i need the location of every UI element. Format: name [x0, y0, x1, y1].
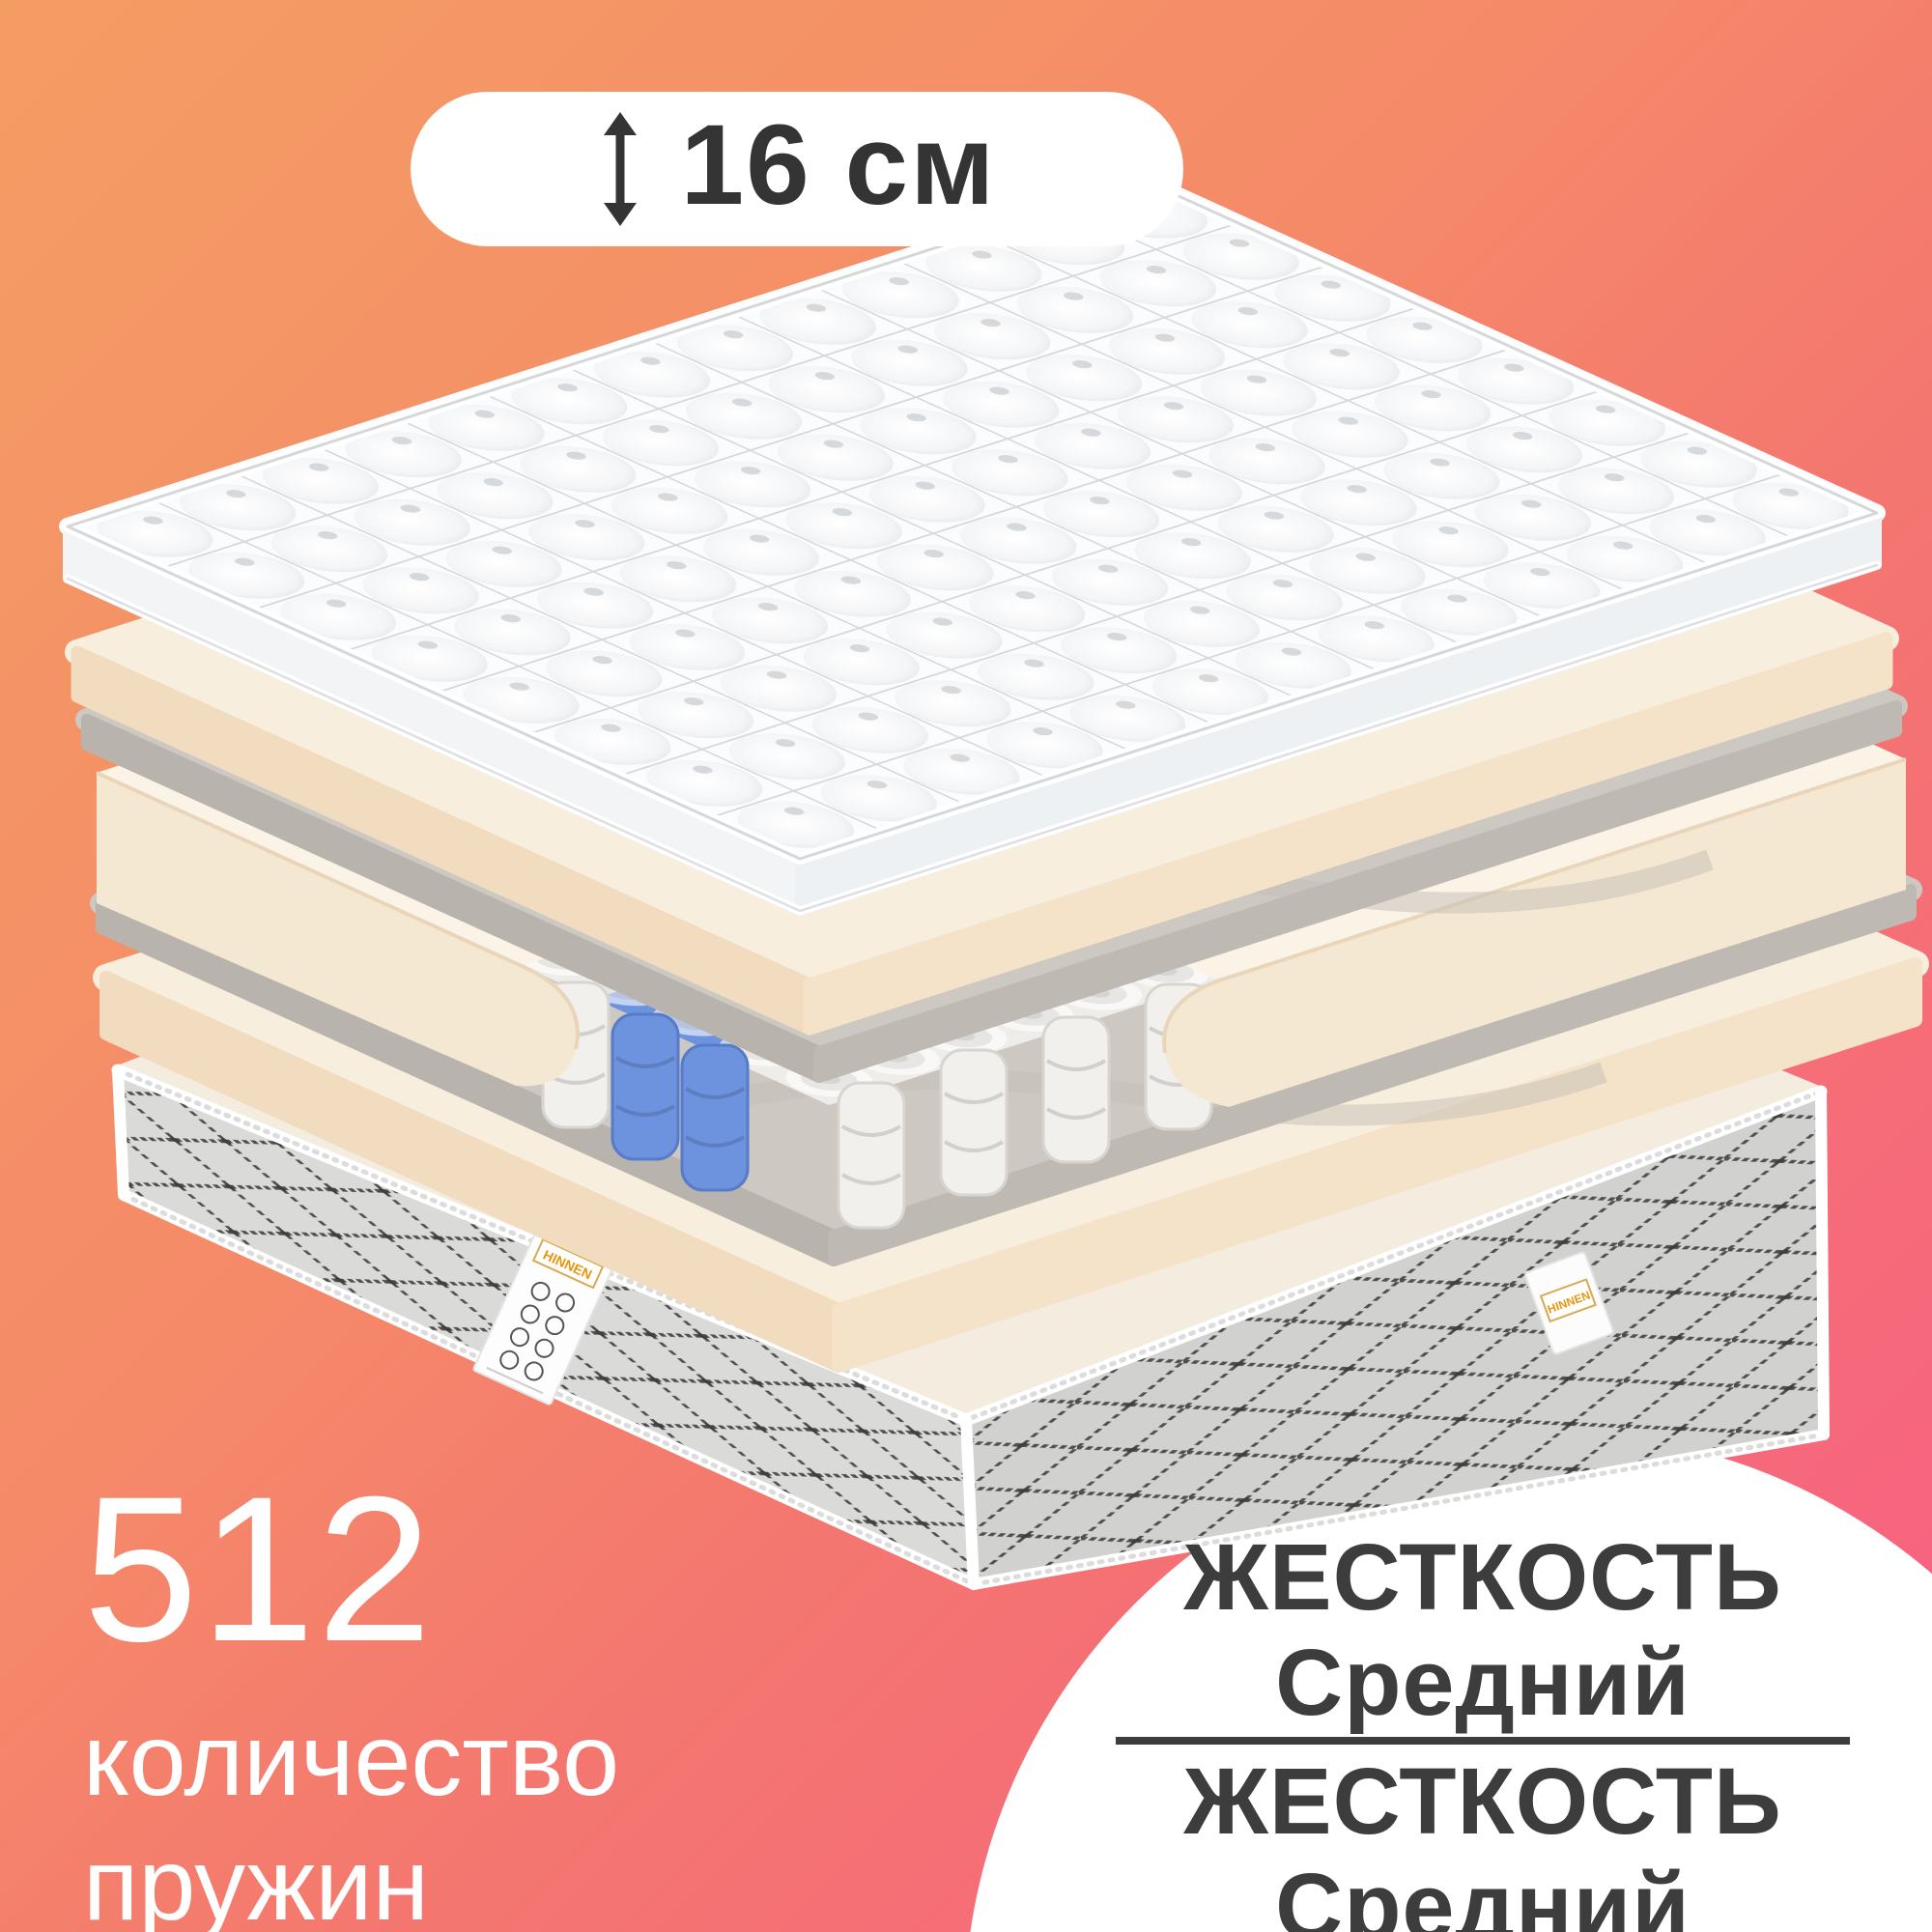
firmness-block-top: ЖЕСТКОСТЬ Средний: [1096, 1530, 1869, 1729]
firmness-value: Средний: [1096, 1635, 1869, 1729]
height-value: 16 см: [681, 99, 997, 231]
firmness-title: ЖЕСТКОСТЬ: [1096, 1530, 1869, 1624]
firmness-title: ЖЕСТКОСТЬ: [1096, 1754, 1869, 1848]
spring-count-label-line2: пружин: [83, 1823, 619, 1932]
spring-count-value: 512: [83, 1466, 619, 1673]
firmness-divider-line: [1116, 1737, 1850, 1745]
double-arrow-vertical-icon: [598, 110, 642, 228]
product-image: HINNEN HINNEN: [0, 0, 1932, 1932]
firmness-panel: ЖЕСТКОСТЬ Средний ЖЕСТКОСТЬ Средний: [1096, 1530, 1869, 1932]
spring-count-label-line1: количество: [83, 1698, 619, 1823]
height-badge: 16 см: [411, 92, 1183, 246]
spring-count-stat: 512 количество пружин: [83, 1466, 619, 1932]
firmness-block-bottom: ЖЕСТКОСТЬ Средний: [1096, 1754, 1869, 1932]
firmness-value: Средний: [1096, 1860, 1869, 1932]
spring-count-label: количество пружин: [83, 1698, 619, 1932]
